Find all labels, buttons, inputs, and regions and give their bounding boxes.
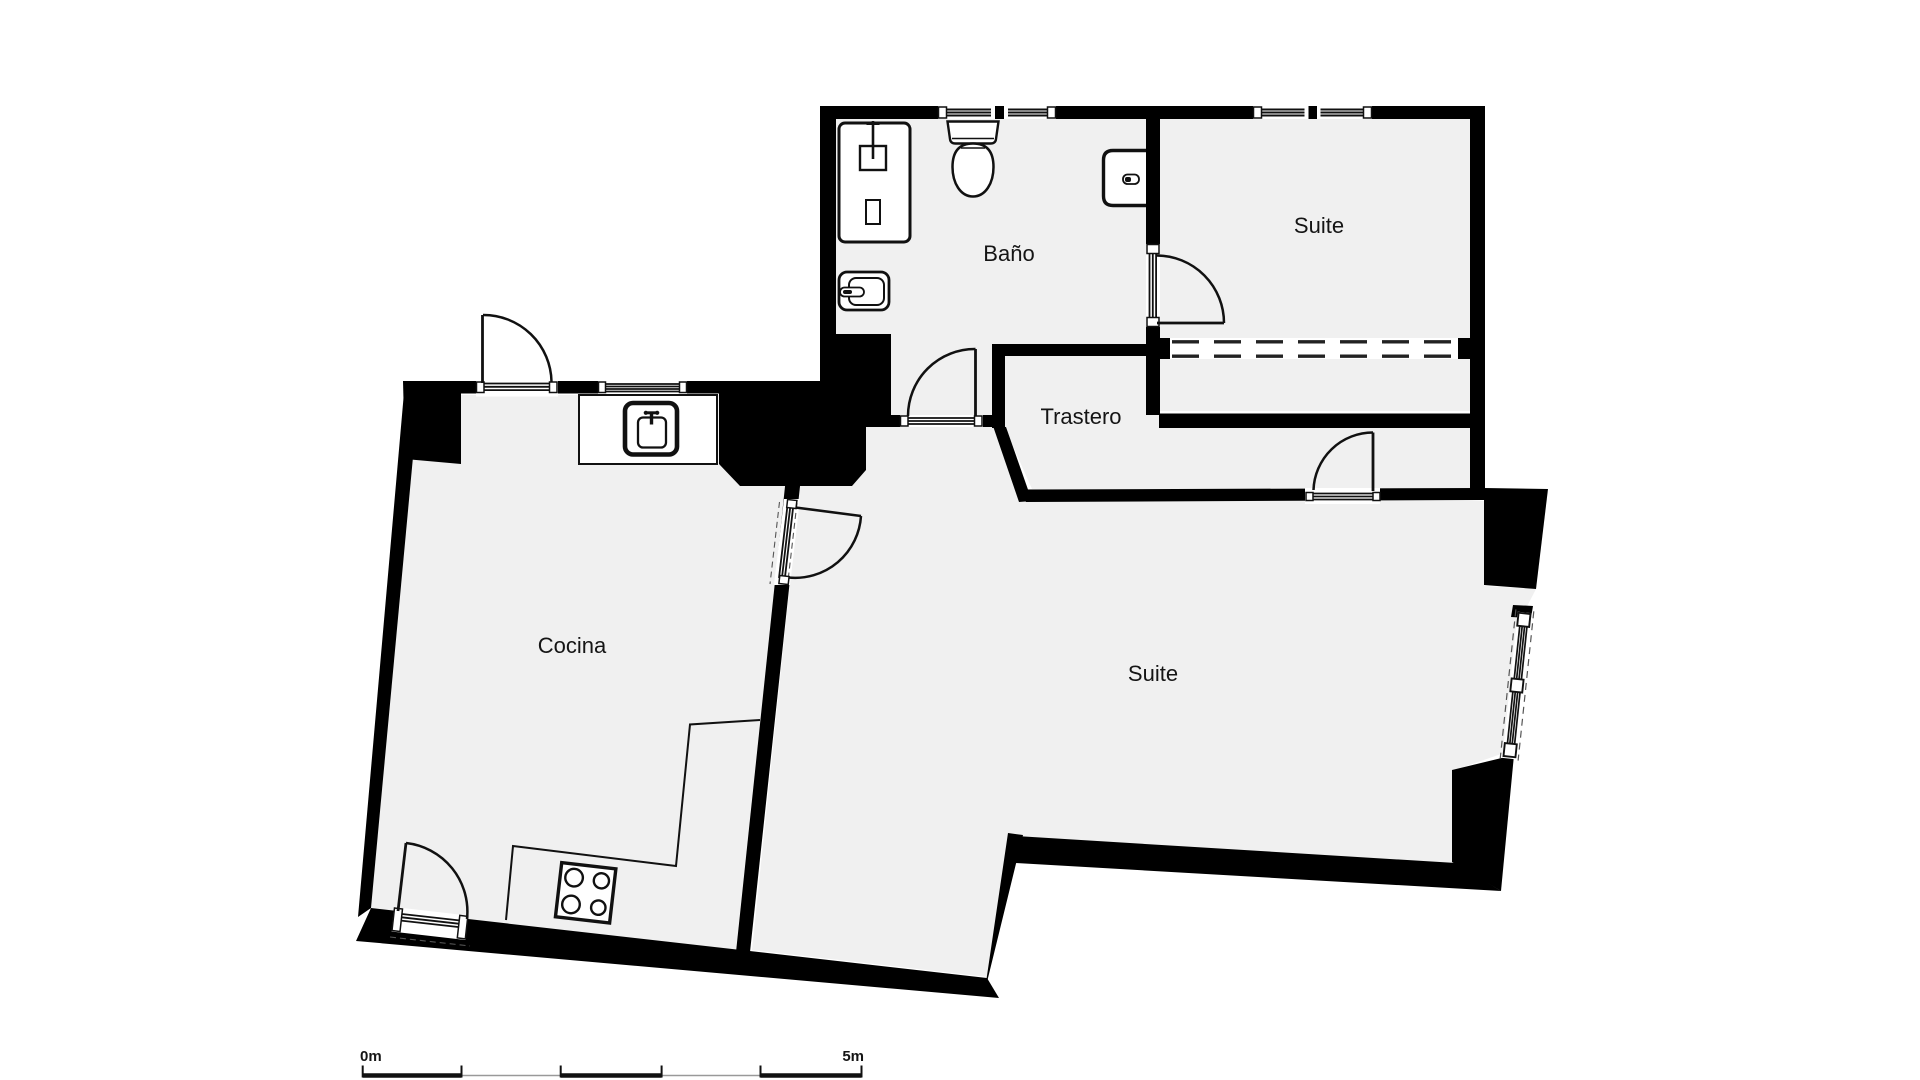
svg-text:5m: 5m bbox=[842, 1048, 864, 1065]
svg-text:0m: 0m bbox=[360, 1048, 382, 1065]
svg-text:Cocina: Cocina bbox=[538, 633, 607, 658]
svg-text:Trastero: Trastero bbox=[1040, 404, 1121, 429]
svg-text:Suite: Suite bbox=[1128, 661, 1178, 686]
svg-text:Suite: Suite bbox=[1294, 213, 1344, 238]
svg-text:Baño: Baño bbox=[983, 241, 1034, 266]
